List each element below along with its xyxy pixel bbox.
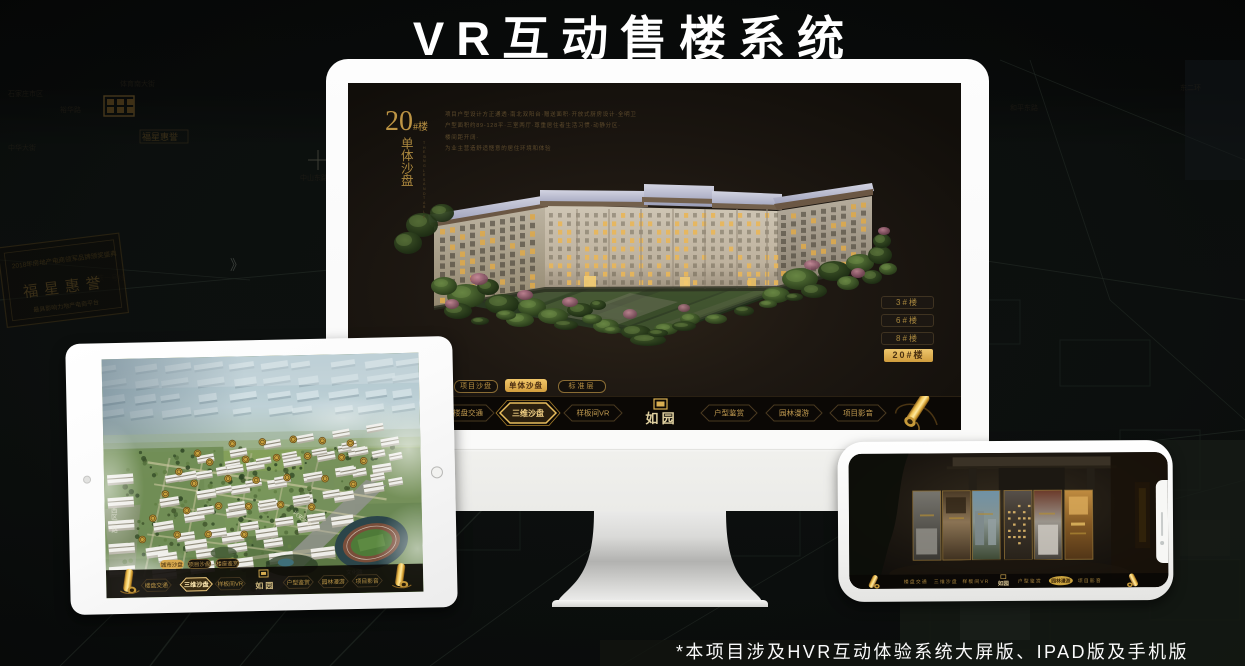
svg-text:园林漫游: 园林漫游 — [779, 408, 809, 418]
svg-text:三维沙盘: 三维沙盘 — [512, 408, 544, 418]
svg-text:样板间VR: 样板间VR — [577, 408, 611, 418]
svg-text:如 园: 如 园 — [255, 580, 273, 590]
svg-text:项目影音: 项目影音 — [843, 408, 873, 418]
svg-text:中山东路: 中山东路 — [300, 173, 328, 182]
svg-text:中华大街: 中华大街 — [8, 143, 36, 152]
svg-text:石家庄市区: 石家庄市区 — [8, 89, 43, 98]
svg-text:体育南大街: 体育南大街 — [120, 79, 155, 88]
svg-text:楼盘交通: 楼盘交通 — [453, 408, 483, 418]
svg-text:户型鉴赏: 户型鉴赏 — [714, 408, 744, 418]
svg-text:》: 》 — [230, 257, 244, 273]
svg-text:三维沙盘: 三维沙盘 — [184, 581, 210, 590]
svg-text:和平东路: 和平东路 — [1010, 103, 1038, 112]
svg-text:东二环: 东二环 — [1180, 83, 1201, 92]
svg-text:如园: 如园 — [997, 579, 1009, 587]
svg-text:福星惠誉: 福星惠誉 — [142, 131, 178, 142]
svg-text:裕华路: 裕华路 — [60, 105, 81, 114]
svg-text:如 园: 如 园 — [645, 411, 674, 426]
